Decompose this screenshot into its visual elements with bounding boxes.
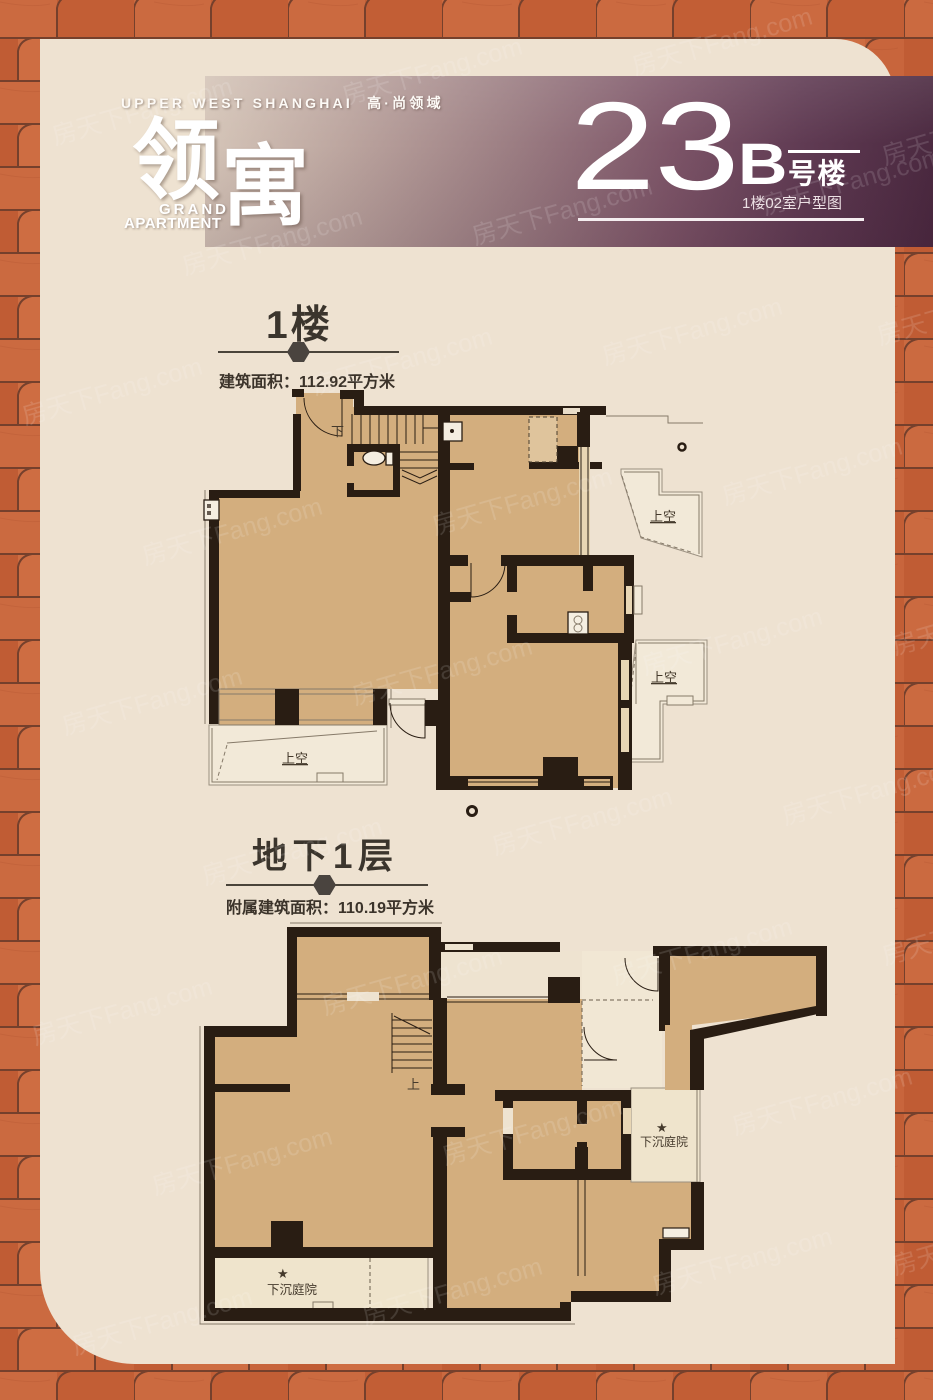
svg-text:上: 上 — [407, 1077, 420, 1092]
svg-text:上空: 上空 — [650, 509, 676, 524]
svg-text:★: ★ — [277, 1266, 289, 1281]
svg-text:下: 下 — [331, 424, 344, 439]
svg-text:★: ★ — [656, 1120, 668, 1135]
svg-text:下沉庭院: 下沉庭院 — [267, 1282, 318, 1297]
svg-text:下沉庭院: 下沉庭院 — [640, 1134, 688, 1149]
svg-text:上空: 上空 — [282, 751, 308, 766]
svg-text:上空: 上空 — [651, 670, 677, 685]
